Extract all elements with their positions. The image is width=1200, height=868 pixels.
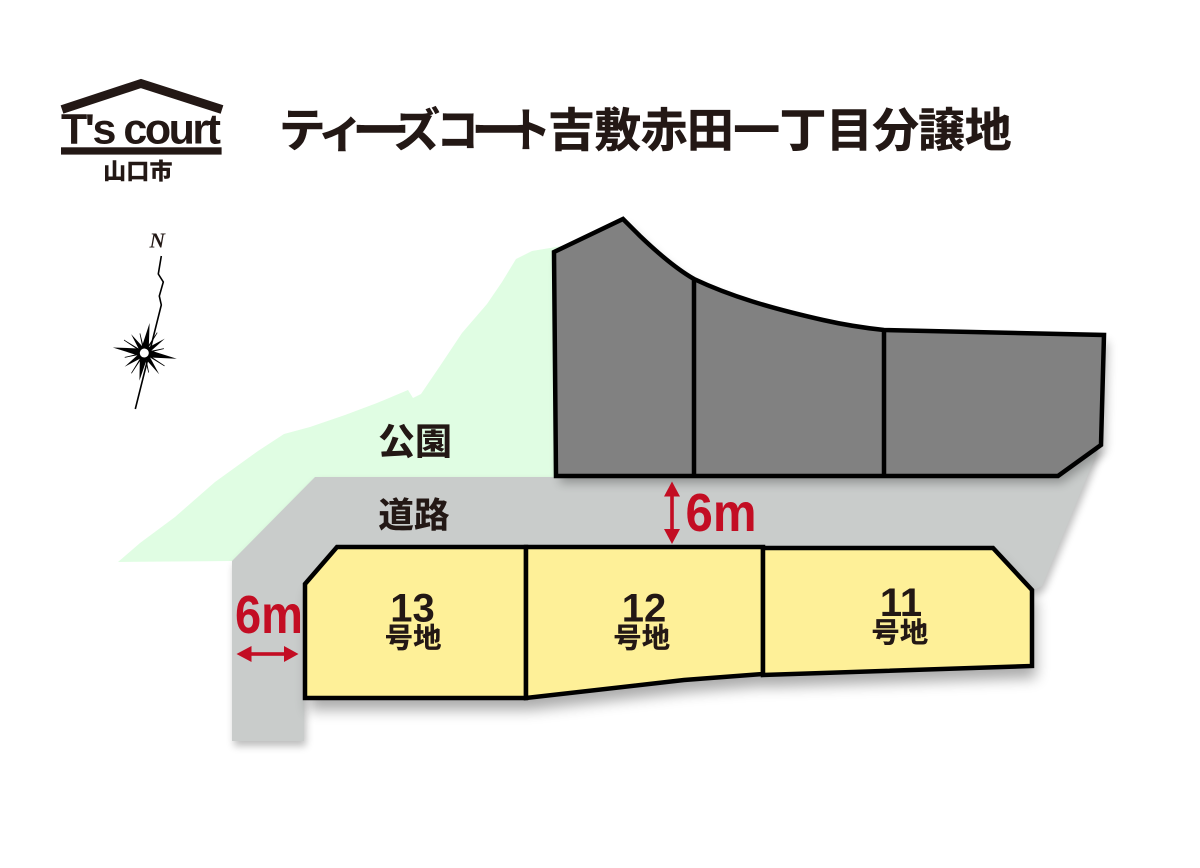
svg-text:13: 13 [390,586,435,630]
svg-text:11: 11 [880,581,922,625]
svg-text:T's court: T's court [61,106,221,154]
svg-text:N: N [149,229,167,253]
svg-text:6m: 6m [235,585,303,645]
svg-text:6m: 6m [686,483,757,543]
